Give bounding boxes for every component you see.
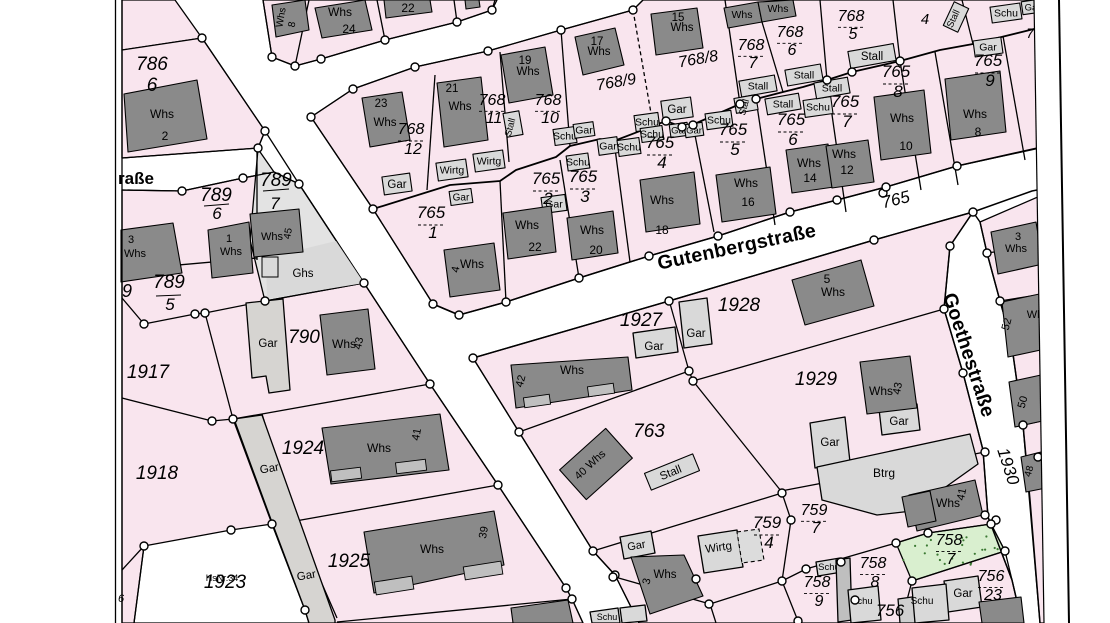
svg-text:Whs: Whs xyxy=(515,218,539,232)
svg-text:Ghs: Ghs xyxy=(292,268,313,280)
svg-text:41: 41 xyxy=(955,487,969,501)
svg-text:Whs: Whs xyxy=(1005,243,1028,255)
svg-text:7: 7 xyxy=(749,55,759,72)
svg-text:10: 10 xyxy=(541,110,559,127)
svg-text:Whs: Whs xyxy=(220,246,243,258)
svg-text:1925: 1925 xyxy=(328,551,371,572)
svg-text:9: 9 xyxy=(985,71,995,90)
svg-text:Whs: Whs xyxy=(460,257,484,271)
svg-text:41: 41 xyxy=(410,427,424,441)
svg-text:23: 23 xyxy=(375,98,388,110)
svg-text:5: 5 xyxy=(165,295,175,314)
svg-text:Whs: Whs xyxy=(732,9,753,21)
svg-text:24: 24 xyxy=(342,22,356,36)
svg-text:2: 2 xyxy=(162,129,169,143)
svg-text:Wirtg: Wirtg xyxy=(440,165,465,177)
svg-text:1: 1 xyxy=(428,223,437,242)
svg-text:5: 5 xyxy=(824,272,831,286)
svg-text:Whs: Whs xyxy=(420,542,444,556)
svg-text:Whs: Whs xyxy=(869,384,893,398)
svg-text:Whs: Whs xyxy=(734,176,758,190)
svg-text:Gar: Gar xyxy=(258,338,277,350)
svg-text:14: 14 xyxy=(803,171,817,185)
svg-text:Gar: Gar xyxy=(820,437,839,449)
svg-text:789: 789 xyxy=(200,185,232,206)
svg-text:21: 21 xyxy=(446,83,459,95)
svg-text:Whs: Whs xyxy=(650,193,674,207)
svg-text:12: 12 xyxy=(404,141,422,158)
svg-text:765: 765 xyxy=(569,167,598,186)
svg-text:756: 756 xyxy=(876,601,905,620)
svg-text:5: 5 xyxy=(849,26,858,43)
svg-text:23: 23 xyxy=(983,587,1002,604)
svg-text:1929: 1929 xyxy=(795,369,838,390)
svg-text:8: 8 xyxy=(871,574,880,591)
svg-text:4: 4 xyxy=(657,153,666,172)
svg-text:Whs: Whs xyxy=(261,231,284,243)
svg-text:6: 6 xyxy=(212,204,222,223)
svg-text:Whs: Whs xyxy=(832,147,856,161)
svg-text:8: 8 xyxy=(975,125,982,139)
svg-text:22: 22 xyxy=(528,240,542,254)
svg-text:Gar: Gar xyxy=(667,104,686,116)
svg-text:765: 765 xyxy=(974,51,1003,70)
svg-text:Schu: Schu xyxy=(617,142,641,154)
svg-text:43: 43 xyxy=(352,336,366,350)
svg-text:1918: 1918 xyxy=(136,463,179,484)
svg-text:756: 756 xyxy=(978,568,1005,585)
svg-text:Gar: Gar xyxy=(599,141,617,153)
svg-text:Schu: Schu xyxy=(911,596,934,607)
svg-text:chu: chu xyxy=(857,596,872,607)
svg-text:Whs: Whs xyxy=(560,363,584,377)
svg-text:18: 18 xyxy=(655,223,669,237)
svg-text:43: 43 xyxy=(891,381,905,395)
svg-text:1927: 1927 xyxy=(620,310,664,331)
svg-text:786: 786 xyxy=(136,54,168,75)
svg-text:39: 39 xyxy=(477,525,491,539)
svg-text:3: 3 xyxy=(580,187,590,206)
svg-text:Whs: Whs xyxy=(963,107,987,121)
svg-text:765: 765 xyxy=(777,110,806,129)
svg-text:Schu: Schu xyxy=(553,131,577,143)
svg-text:1: 1 xyxy=(226,233,232,245)
svg-text:Stall: Stall xyxy=(794,70,814,82)
svg-text:Stall: Stall xyxy=(861,51,883,63)
svg-text:6: 6 xyxy=(788,130,798,149)
svg-text:10: 10 xyxy=(899,139,913,153)
svg-text:Whs: Whs xyxy=(374,117,397,129)
svg-text:Whs: Whs xyxy=(654,569,677,581)
svg-text:4: 4 xyxy=(921,11,929,28)
svg-text:Whs: Whs xyxy=(124,248,147,260)
svg-text:758: 758 xyxy=(804,574,831,591)
svg-text:765: 765 xyxy=(417,203,446,222)
svg-text:Gar: Gar xyxy=(453,193,470,204)
svg-text:6: 6 xyxy=(788,42,797,59)
svg-text:Whs: Whs xyxy=(797,156,821,170)
svg-text:Whs: Whs xyxy=(588,46,611,58)
svg-text:3: 3 xyxy=(128,234,134,246)
svg-text:1924: 1924 xyxy=(282,438,324,459)
svg-text:759: 759 xyxy=(753,513,782,532)
svg-text:Stall: Stall xyxy=(748,81,768,93)
svg-text:6: 6 xyxy=(147,75,158,96)
svg-text:789: 789 xyxy=(153,272,185,293)
svg-text:768: 768 xyxy=(535,92,562,109)
svg-text:Stall: Stall xyxy=(773,99,793,111)
svg-text:3: 3 xyxy=(1015,231,1021,243)
svg-text:765: 765 xyxy=(882,62,911,81)
svg-text:Whs: Whs xyxy=(328,5,352,19)
svg-text:763: 763 xyxy=(633,421,665,442)
svg-text:790: 790 xyxy=(288,327,320,348)
svg-text:768: 768 xyxy=(398,121,425,138)
svg-text:7: 7 xyxy=(842,112,852,131)
svg-text:Schu: Schu xyxy=(994,8,1018,20)
svg-text:1928: 1928 xyxy=(718,295,761,316)
svg-text:768: 768 xyxy=(738,37,765,54)
svg-text:9: 9 xyxy=(122,281,132,301)
svg-text:11: 11 xyxy=(486,110,503,127)
svg-text:765: 765 xyxy=(646,133,675,152)
svg-text:Whs: Whs xyxy=(890,111,914,125)
svg-text:7: 7 xyxy=(812,520,822,537)
svg-text:768: 768 xyxy=(777,24,804,41)
svg-text:7: 7 xyxy=(270,194,280,213)
svg-text:765: 765 xyxy=(831,92,860,111)
svg-text:Gar: Gar xyxy=(686,328,705,340)
svg-text:Gar: Gar xyxy=(889,416,908,428)
svg-text:Btrg: Btrg xyxy=(873,466,895,480)
svg-text:765: 765 xyxy=(719,120,748,139)
svg-text:22: 22 xyxy=(401,1,415,15)
svg-text:4: 4 xyxy=(764,533,773,552)
svg-text:Whs: Whs xyxy=(517,66,540,78)
svg-text:759: 759 xyxy=(801,502,828,519)
svg-text:5: 5 xyxy=(730,140,740,159)
svg-text:1917: 1917 xyxy=(127,362,171,383)
svg-text:768: 768 xyxy=(838,8,865,25)
svg-text:Gar: Gar xyxy=(953,588,972,600)
svg-text:9: 9 xyxy=(815,593,824,610)
svg-text:Whs: Whs xyxy=(449,101,472,113)
svg-text:Whs: Whs xyxy=(821,285,845,299)
svg-text:758: 758 xyxy=(860,555,887,572)
svg-text:765: 765 xyxy=(532,169,561,188)
svg-text:7: 7 xyxy=(947,551,957,568)
svg-text:Wirtg: Wirtg xyxy=(477,156,502,168)
svg-text:Gar: Gar xyxy=(644,341,663,353)
svg-text:Schu: Schu xyxy=(597,612,618,622)
svg-text:Schu: Schu xyxy=(806,102,830,114)
svg-text:20: 20 xyxy=(589,243,603,257)
svg-text:768: 768 xyxy=(479,92,506,109)
svg-text:Whs: Whs xyxy=(367,441,391,455)
svg-text:Whs: Whs xyxy=(671,22,694,34)
svg-text:Whs: Whs xyxy=(150,107,174,121)
svg-text:HsNr.34: HsNr.34 xyxy=(206,573,239,583)
svg-text:16: 16 xyxy=(741,195,755,209)
svg-text:raße: raße xyxy=(118,169,154,188)
svg-text:789: 789 xyxy=(260,170,292,191)
svg-text:2: 2 xyxy=(542,189,553,208)
svg-text:Whs: Whs xyxy=(768,3,789,15)
svg-text:Gar: Gar xyxy=(387,179,406,191)
svg-text:758: 758 xyxy=(936,532,963,549)
svg-text:Gar: Gar xyxy=(575,125,593,137)
svg-text:Whs: Whs xyxy=(580,223,604,237)
svg-text:12: 12 xyxy=(840,163,854,177)
svg-text:8: 8 xyxy=(893,82,903,101)
